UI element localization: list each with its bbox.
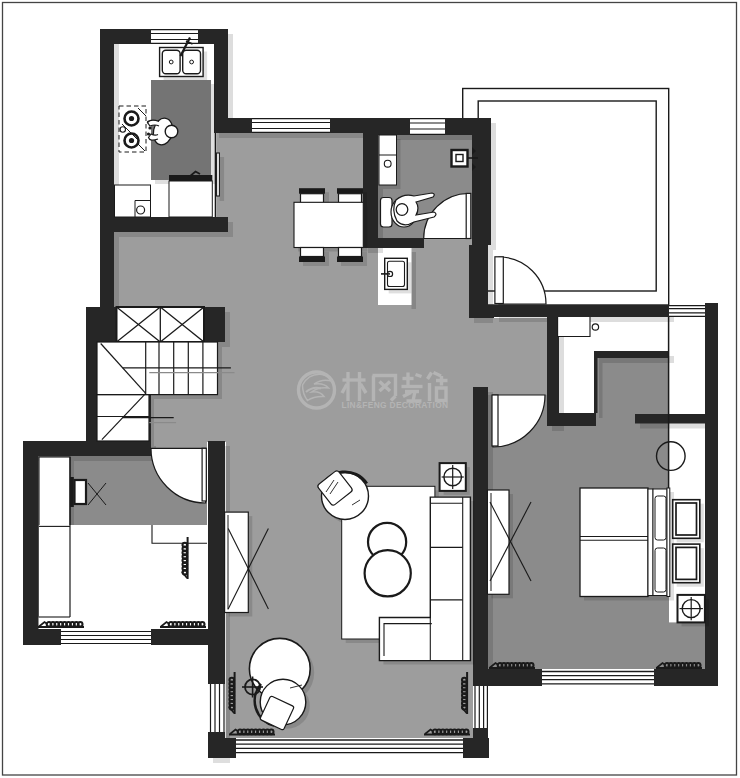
svg-text:LIN&FENG DECORATION: LIN&FENG DECORATION — [342, 400, 449, 410]
